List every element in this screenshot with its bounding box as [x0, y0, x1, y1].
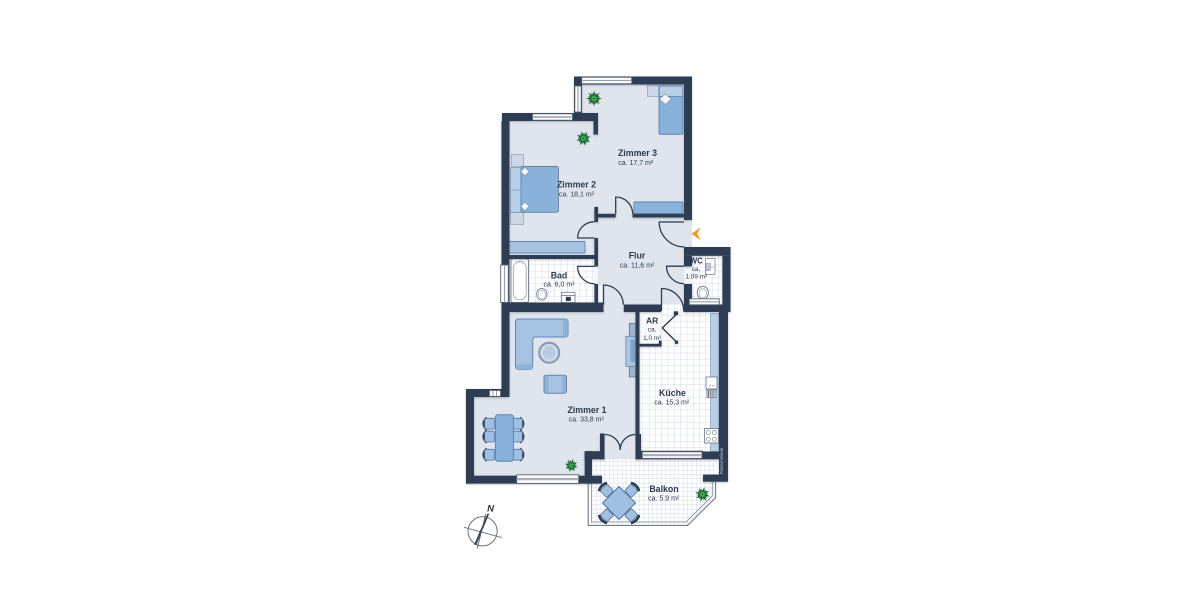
svg-text:ca.: ca.: [648, 327, 657, 334]
svg-text:Bad: Bad: [551, 271, 568, 281]
svg-text:Zimmer 2: Zimmer 2: [557, 180, 596, 190]
svg-text:ca. 18,1 m²: ca. 18,1 m²: [559, 192, 595, 199]
svg-text:Küche: Küche: [659, 388, 686, 398]
svg-text:Zimmer 1: Zimmer 1: [567, 405, 606, 415]
svg-text:ca. 17,7 m²: ca. 17,7 m²: [618, 160, 654, 167]
svg-text:Planschmiede: Planschmiede: [719, 447, 724, 474]
svg-text:Balkon: Balkon: [649, 484, 678, 494]
svg-text:Zimmer 3: Zimmer 3: [618, 148, 657, 158]
svg-text:AR: AR: [646, 316, 658, 326]
svg-text:N: N: [487, 504, 495, 515]
svg-text:ca. 5.9 m²: ca. 5.9 m²: [648, 496, 680, 503]
svg-text:Flur: Flur: [629, 251, 646, 261]
svg-text:ca. 11,6 m²: ca. 11,6 m²: [620, 263, 655, 270]
svg-text:ca. 6,0 m²: ca. 6,0 m²: [543, 282, 575, 289]
svg-text:ca. 33,8 m²: ca. 33,8 m²: [569, 417, 605, 424]
svg-text:WC: WC: [690, 256, 704, 265]
svg-text:1,0 m²: 1,0 m²: [643, 335, 661, 342]
svg-text:1.09 m²: 1.09 m²: [685, 274, 707, 281]
svg-text:ca.: ca.: [692, 266, 701, 273]
svg-text:ca. 15,3 m²: ca. 15,3 m²: [654, 400, 690, 407]
